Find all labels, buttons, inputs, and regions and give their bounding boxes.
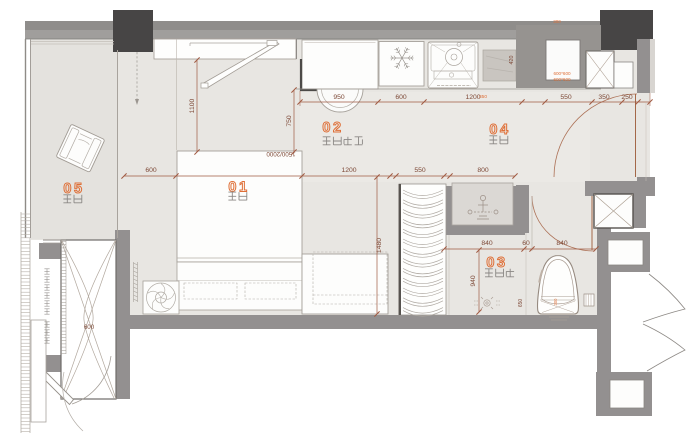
svg-text:1200: 1200 <box>341 167 356 174</box>
svg-text:60: 60 <box>522 240 530 247</box>
svg-text:350: 350 <box>479 94 487 100</box>
svg-text:600: 600 <box>145 167 157 174</box>
svg-text:1500/2000: 1500/2000 <box>266 150 296 157</box>
svg-text:550: 550 <box>414 167 426 174</box>
svg-text:840: 840 <box>556 240 568 247</box>
svg-text:1480: 1480 <box>376 238 383 253</box>
svg-text:250: 250 <box>621 94 633 101</box>
svg-text:600*600: 600*600 <box>553 71 571 76</box>
svg-text:650: 650 <box>518 299 524 308</box>
svg-text:350: 350 <box>598 94 610 101</box>
svg-text:600: 600 <box>395 94 407 101</box>
svg-text:940: 940 <box>470 275 477 287</box>
svg-text:300: 300 <box>553 19 561 24</box>
svg-text:02: 02 <box>322 120 343 136</box>
svg-text:800: 800 <box>477 167 489 174</box>
svg-text:950: 950 <box>333 94 345 101</box>
svg-text:550: 550 <box>560 94 572 101</box>
svg-text:600*600: 600*600 <box>553 77 571 82</box>
svg-text:420: 420 <box>509 56 515 65</box>
svg-text:840: 840 <box>481 240 493 247</box>
svg-text:600: 600 <box>84 324 95 331</box>
svg-text:1100: 1100 <box>189 98 196 113</box>
svg-text:300: 300 <box>553 298 558 306</box>
svg-text:750: 750 <box>286 115 293 127</box>
